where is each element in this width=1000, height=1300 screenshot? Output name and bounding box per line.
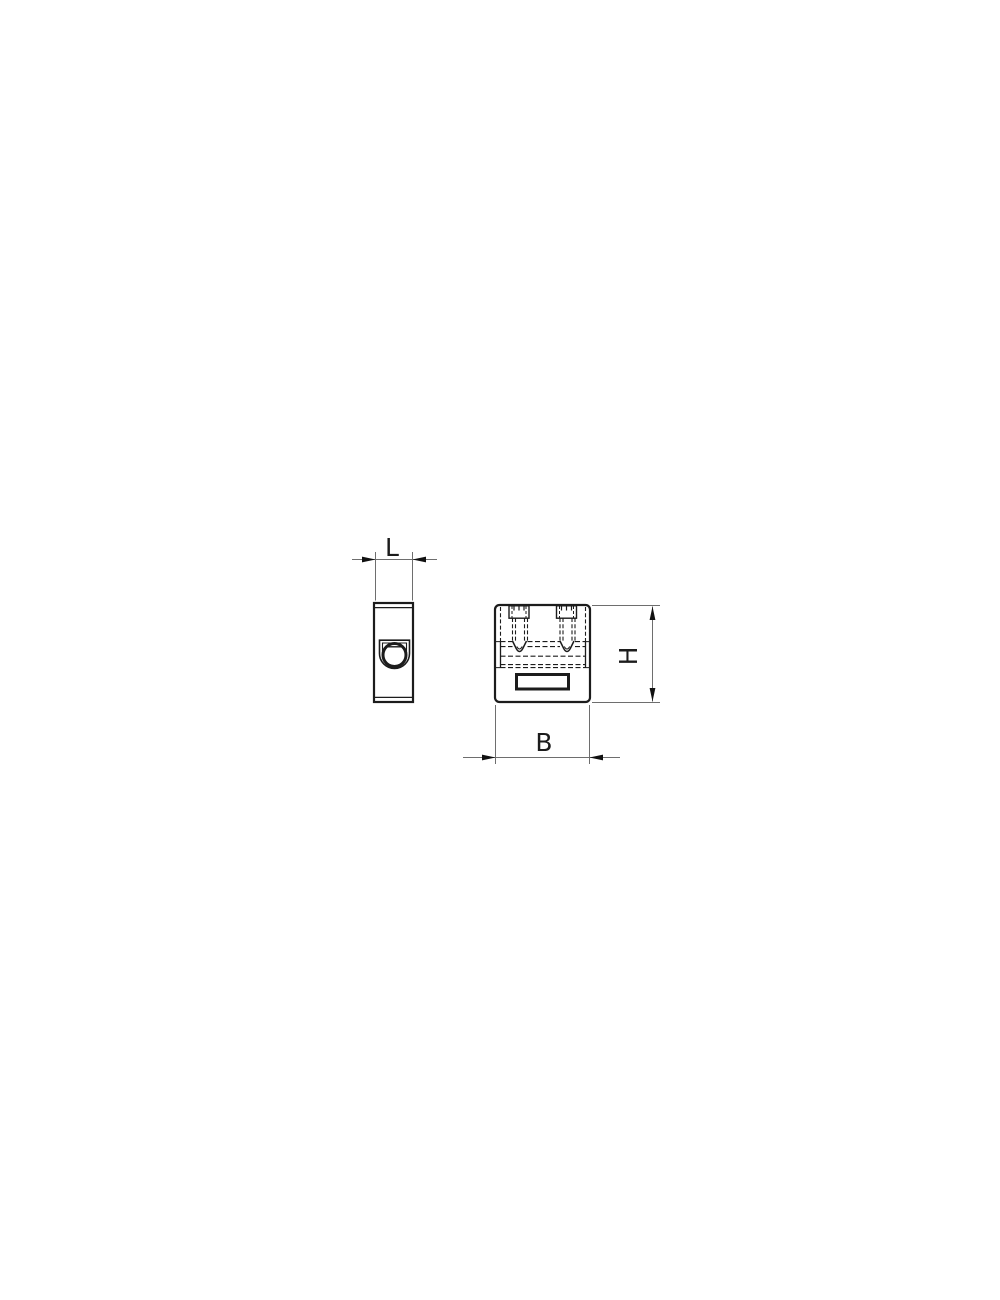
label-window (517, 675, 569, 690)
terminal-tip-left (513, 641, 527, 652)
arrowhead (650, 607, 656, 621)
arrowhead (650, 688, 656, 702)
terminal-cap-right-serrations (562, 606, 572, 611)
dimension-length: L (352, 533, 437, 601)
terminal-shaft-left (513, 618, 528, 641)
terminal-cap-right (557, 606, 577, 618)
front-view-body (495, 605, 590, 702)
terminal-shaft-right (560, 618, 575, 641)
arrowhead (362, 557, 376, 563)
height-label: H (614, 647, 643, 666)
technical-drawing: L H B (0, 0, 1000, 1300)
drawing-page: L H B (0, 0, 1000, 1300)
arrowhead (413, 557, 427, 563)
terminal-tip-right-inner (564, 647, 569, 650)
dimension-height: H (592, 606, 660, 703)
terminal-tip-left-inner (517, 647, 522, 650)
arrowhead (590, 755, 604, 761)
front-view (495, 605, 590, 702)
terminal-tip-right (560, 641, 574, 652)
arrowhead (482, 755, 496, 761)
dimension-width: B (463, 705, 620, 764)
internal-channel (496, 641, 589, 668)
side-view (374, 603, 413, 702)
terminal-cap-left-serrations (514, 606, 524, 611)
cavity-wall-lines (501, 607, 586, 641)
length-label: L (385, 533, 399, 562)
terminal-cap-left (509, 606, 529, 618)
width-label: B (535, 728, 552, 757)
